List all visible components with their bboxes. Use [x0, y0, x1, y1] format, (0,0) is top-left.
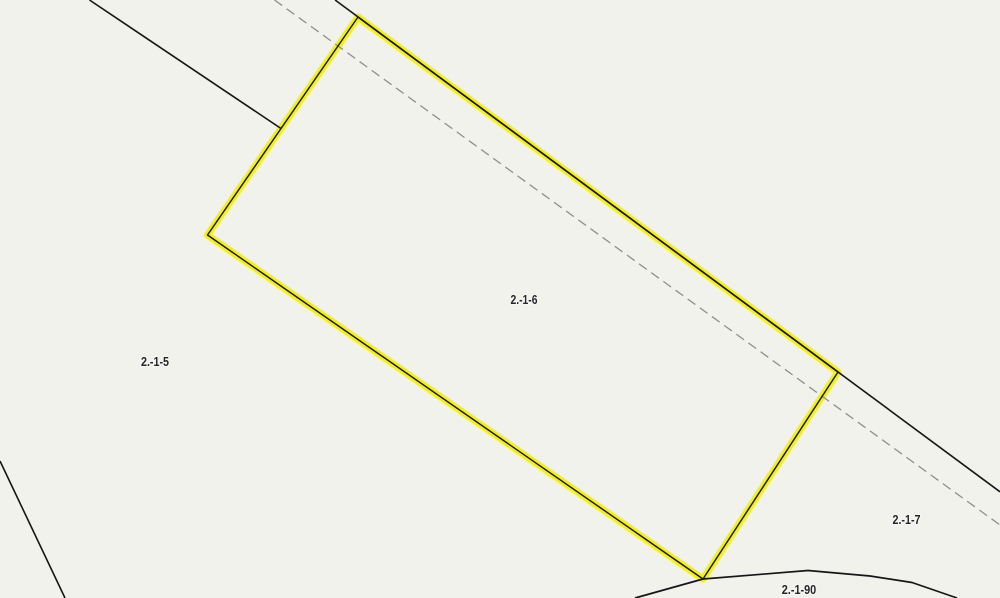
svg-text:2.-1-6: 2.-1-6	[511, 292, 538, 307]
svg-text:2.-1-5: 2.-1-5	[141, 354, 169, 369]
svg-text:2.-1-7: 2.-1-7	[893, 512, 921, 527]
svg-text:2.-1-90: 2.-1-90	[782, 582, 817, 597]
